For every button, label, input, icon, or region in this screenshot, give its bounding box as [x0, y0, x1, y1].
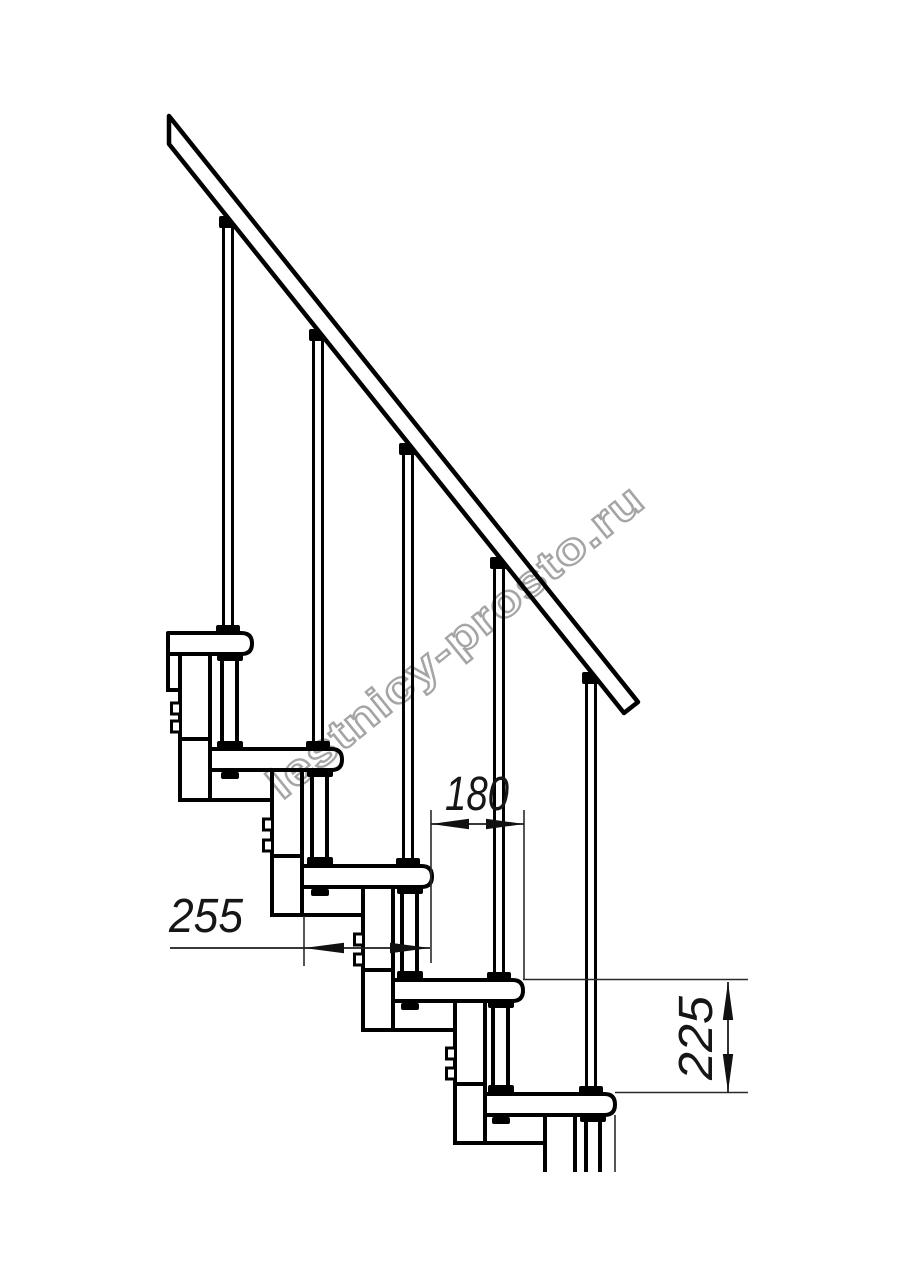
- dimension-arrows: [304, 819, 733, 1092]
- support-post-3: [402, 887, 417, 980]
- tread-5: [485, 1094, 615, 1115]
- dim-label-225: 225: [670, 996, 723, 1081]
- baluster-5: [587, 672, 596, 1094]
- clip-icon: [447, 1048, 456, 1059]
- tread-1: [168, 633, 252, 654]
- clip-icon: [264, 819, 273, 830]
- arrow-icon: [723, 982, 733, 1020]
- arrow-icon: [304, 943, 344, 953]
- arrow-icon: [390, 943, 430, 953]
- clip-icon: [172, 721, 181, 732]
- clip-icon: [172, 703, 181, 714]
- staircase-technical-drawing: 180 255 225 lestnicy-prosto.ru: [0, 0, 914, 1280]
- arrow-icon: [723, 1054, 733, 1092]
- clip-icon: [355, 954, 364, 965]
- tread-4: [393, 980, 523, 1001]
- clip-icon: [264, 840, 273, 851]
- clip-icon: [355, 934, 364, 945]
- support-post-1: [222, 654, 237, 749]
- clip-icon: [447, 1068, 456, 1079]
- baluster-2: [314, 329, 323, 749]
- support-post-4: [493, 1001, 508, 1094]
- dim-label-180: 180: [445, 768, 509, 821]
- support-post-5: [586, 1115, 600, 1172]
- dimensions: 180 255 225: [168, 768, 748, 1172]
- column-module-5: [545, 1115, 575, 1172]
- tread-3: [302, 866, 432, 887]
- staircase-drawing-page: 180 255 225 lestnicy-prosto.ru: [0, 0, 914, 1280]
- baluster-1: [224, 216, 233, 633]
- dim-label-255: 255: [168, 890, 243, 943]
